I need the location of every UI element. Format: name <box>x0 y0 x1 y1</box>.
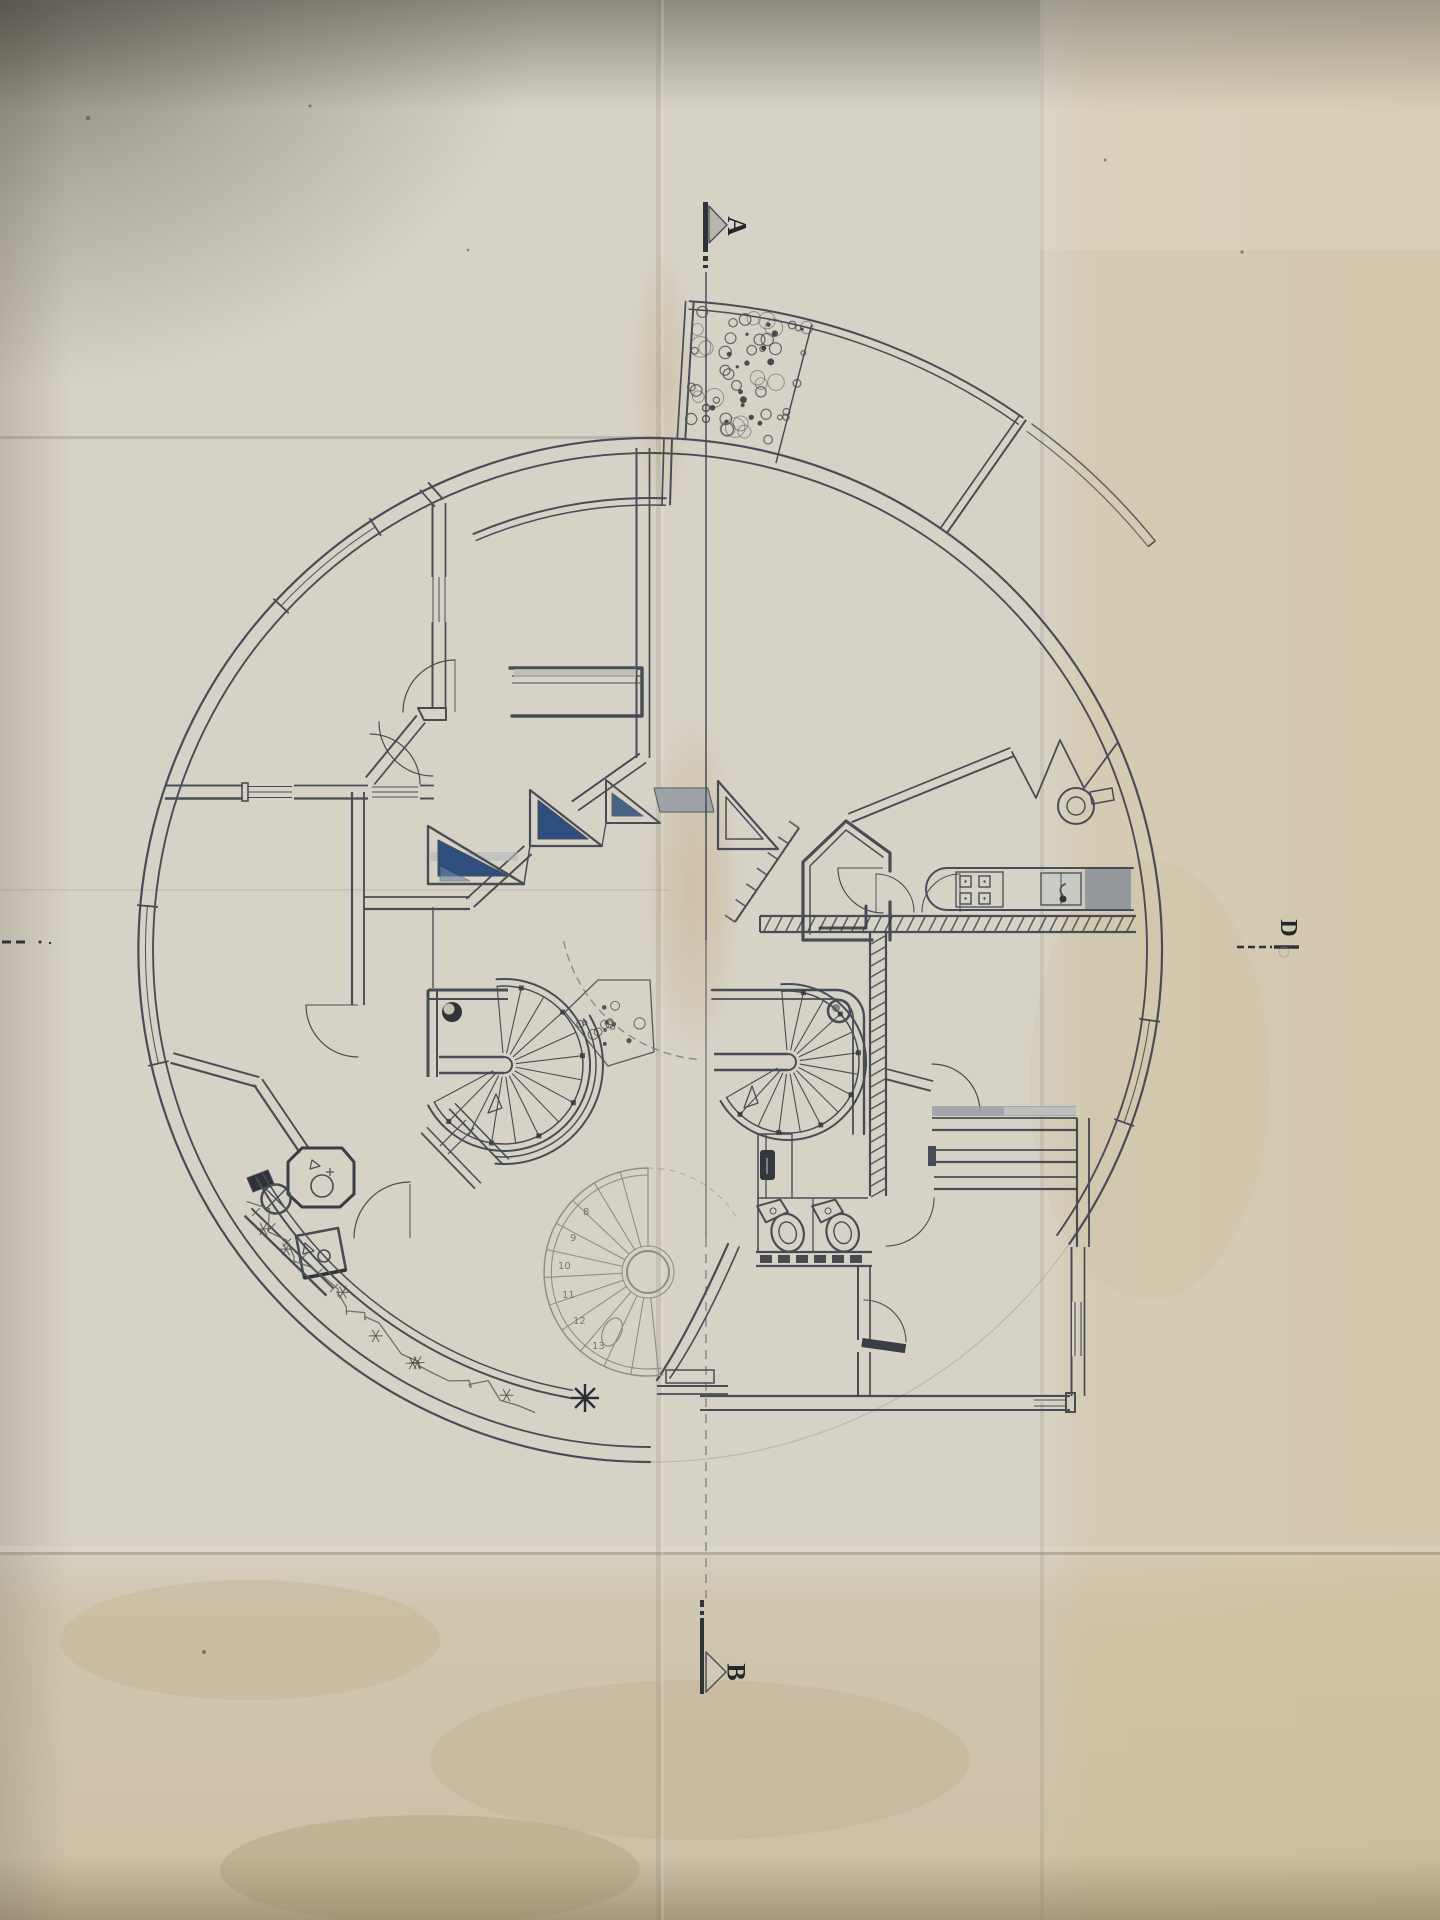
stair-step-number: 8 <box>583 1207 589 1218</box>
section-marker-a-letter: A <box>722 216 752 236</box>
fold-crease-horizontal-middle <box>0 889 670 891</box>
fold-crease-horizontal-lower <box>0 1552 1440 1555</box>
stair-step-number: 11 <box>562 1290 575 1301</box>
stair-step-number: 12 <box>573 1316 586 1327</box>
paper-background <box>0 0 1440 1920</box>
fold-crease-vertical-center <box>656 0 661 1920</box>
fold-crease-horizontal-lower-highlight <box>0 1546 1440 1552</box>
paper-blotch-4 <box>1030 860 1270 1300</box>
fold-crease-vertical-center-highlight <box>661 0 664 1920</box>
stair-step-number: 13 <box>592 1341 605 1352</box>
paper-blotch-2 <box>430 1680 970 1840</box>
paper-bottom-edge-shadow <box>0 1855 1440 1920</box>
fold-crease-vertical-right <box>1040 0 1044 1920</box>
paper-blotch-1 <box>60 1580 440 1700</box>
paper-top-left-corner-shadow <box>0 0 720 520</box>
paper-blotch-3 <box>220 1815 640 1920</box>
large-flower-symbol <box>571 1384 599 1412</box>
section-marker-d-letter: D <box>1275 919 1301 936</box>
fold-crease-horizontal-upper <box>0 436 660 439</box>
stair-step-number: 10 <box>558 1261 571 1272</box>
stair-step-number: 9 <box>570 1233 576 1244</box>
paper-top-right-lighter <box>1040 0 1440 250</box>
section-marker-b-letter: B <box>722 1663 751 1680</box>
floor-plan-photo: A B D 8 9 10 11 12 13 <box>0 0 1440 1920</box>
